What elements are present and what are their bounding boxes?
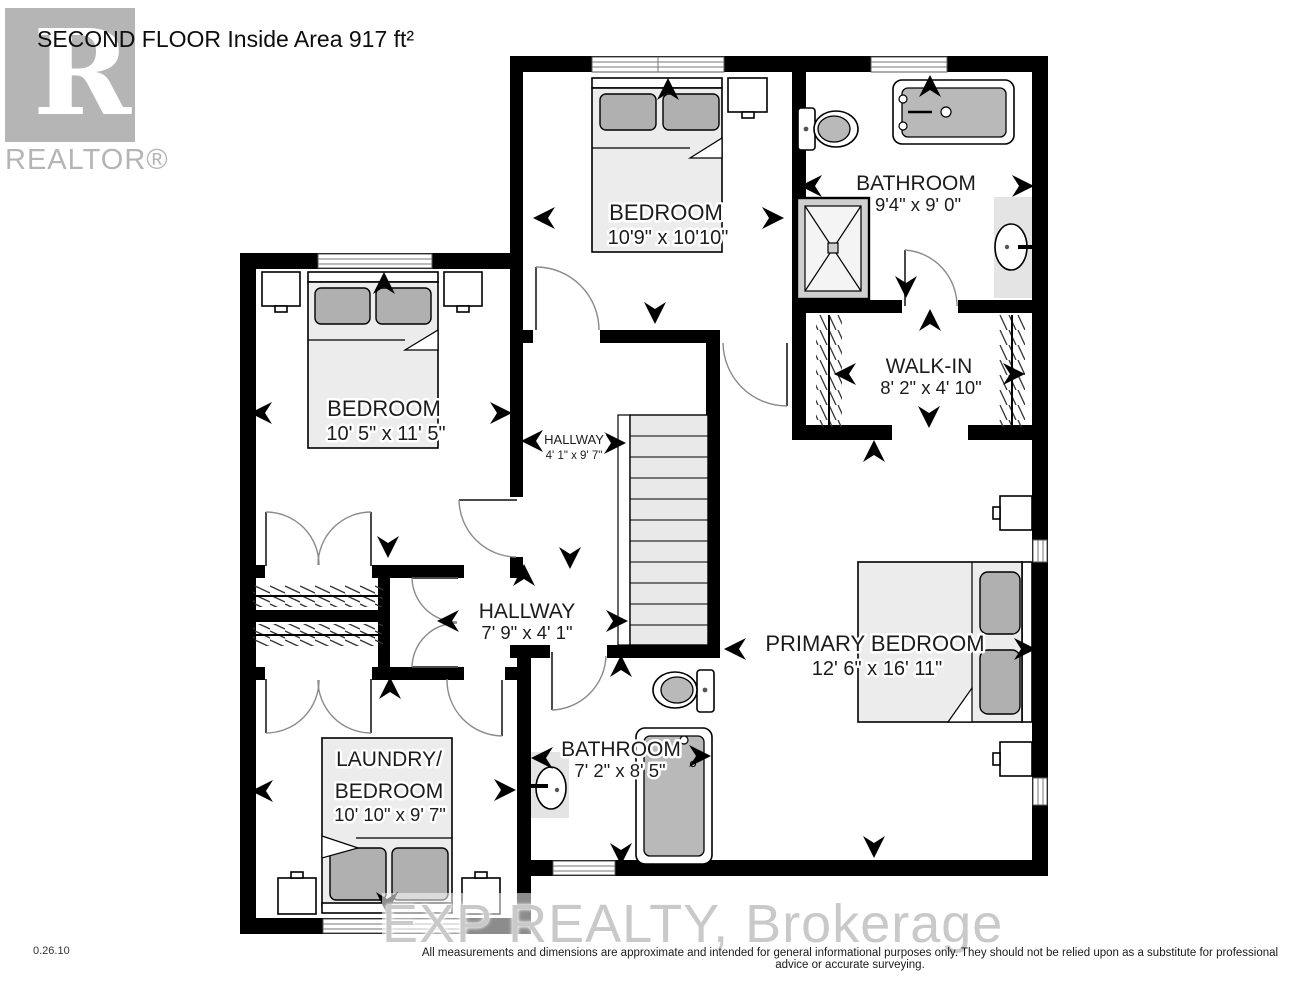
page-title: SECOND FLOOR Inside Area 917 ft² — [37, 26, 414, 53]
floorplan-page: BEDROOM 10'9" x 10'10" BATHROOM 9'4" x 9… — [0, 0, 1294, 1000]
door-top-bathroom — [905, 250, 957, 306]
version-number: 0.26.10 — [33, 945, 70, 957]
room-dims-walk-in: 8' 2" x 4' 10" — [880, 377, 981, 398]
room-dims-laundry: 10' 10" x 9' 7" — [334, 804, 446, 825]
bed-top-bedroom — [592, 78, 722, 252]
window — [871, 57, 947, 72]
sink-vanity-icon — [994, 197, 1036, 298]
bathtub-icon — [893, 80, 1014, 144]
nightstand — [278, 872, 316, 914]
door-left-bedroom — [459, 500, 517, 557]
bed-left-bedroom — [308, 272, 438, 448]
toilet-icon — [798, 108, 858, 150]
room-label-bathroom-lower: BATHROOM — [561, 738, 681, 761]
window — [318, 254, 432, 268]
window — [553, 861, 615, 875]
disclaimer-text: All measurements and dimensions are appr… — [420, 947, 1280, 971]
door-closet-bedroom-side — [266, 512, 371, 566]
room-dims-bathroom-top: 9'4" x 9' 0" — [875, 194, 961, 215]
room-dims-hallway-lower: 7' 9" x 4' 1" — [481, 622, 572, 643]
room-label-laundry-line2: BEDROOM — [335, 780, 444, 803]
nightstand — [262, 272, 300, 312]
realtor-logo-text: REALTOR® — [5, 144, 155, 177]
room-label-bathroom-top: BATHROOM — [856, 172, 976, 195]
door-primary-bedroom — [723, 343, 787, 406]
door-lower-bathroom — [552, 652, 606, 710]
window — [1033, 540, 1047, 562]
room-dims-bedroom-left: 10' 5" x 11' 5" — [326, 423, 445, 445]
nightstand — [993, 742, 1032, 776]
window — [1033, 778, 1047, 805]
door-laundry-bedroom — [447, 679, 502, 736]
room-label-walk-in: WALK-IN — [886, 355, 973, 378]
shower-icon — [797, 198, 869, 299]
staircase — [618, 415, 708, 645]
room-dims-bathroom-lower: 7' 2" x 8' 5" — [574, 760, 665, 781]
nightstand — [993, 496, 1032, 530]
room-dims-bedroom-top: 10'9" x 10'10" — [608, 227, 729, 249]
room-label-laundry-line1: LAUNDRY/ — [336, 748, 442, 771]
door-closet-laundry-side — [266, 679, 371, 733]
room-dims-hallway-upper: 4' 1" x 9' 7" — [546, 450, 603, 462]
room-label-hallway-upper: HALLWAY — [544, 432, 604, 447]
room-label-bedroom-left: BEDROOM — [327, 396, 441, 421]
room-dims-primary-bedroom: 12' 6" x 16' 11" — [812, 658, 942, 680]
nightstand — [728, 78, 767, 118]
room-label-hallway-lower: HALLWAY — [479, 600, 575, 623]
toilet-icon — [653, 670, 714, 712]
room-label-bedroom-top: BEDROOM — [609, 200, 723, 225]
brokerage-watermark: EXP REALTY, Brokerage — [382, 893, 952, 951]
room-label-primary-bedroom: PRIMARY BEDROOM — [765, 631, 984, 656]
window — [592, 57, 724, 72]
floorplan-drawing: BEDROOM 10'9" x 10'10" BATHROOM 9'4" x 9… — [0, 0, 1294, 1000]
door-top-bedroom — [536, 267, 599, 330]
nightstand — [444, 272, 482, 312]
